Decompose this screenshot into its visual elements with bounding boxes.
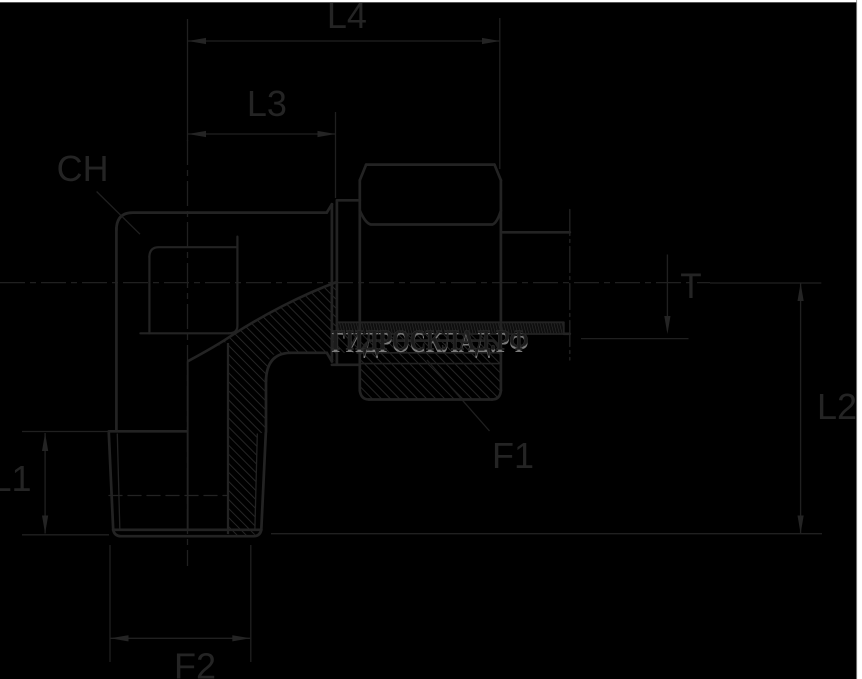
svg-text:F1: F1 xyxy=(492,435,534,476)
svg-text:T: T xyxy=(680,267,701,306)
svg-text:L1: L1 xyxy=(0,458,32,499)
svg-text:F2: F2 xyxy=(174,645,216,679)
svg-text:L3: L3 xyxy=(247,83,287,124)
svg-text:ГИДРОСКЛАД.РФ: ГИДРОСКЛАД.РФ xyxy=(332,326,529,357)
svg-text:L2: L2 xyxy=(817,386,857,427)
svg-text:CH: CH xyxy=(57,148,109,189)
svg-text:L4: L4 xyxy=(327,0,367,36)
